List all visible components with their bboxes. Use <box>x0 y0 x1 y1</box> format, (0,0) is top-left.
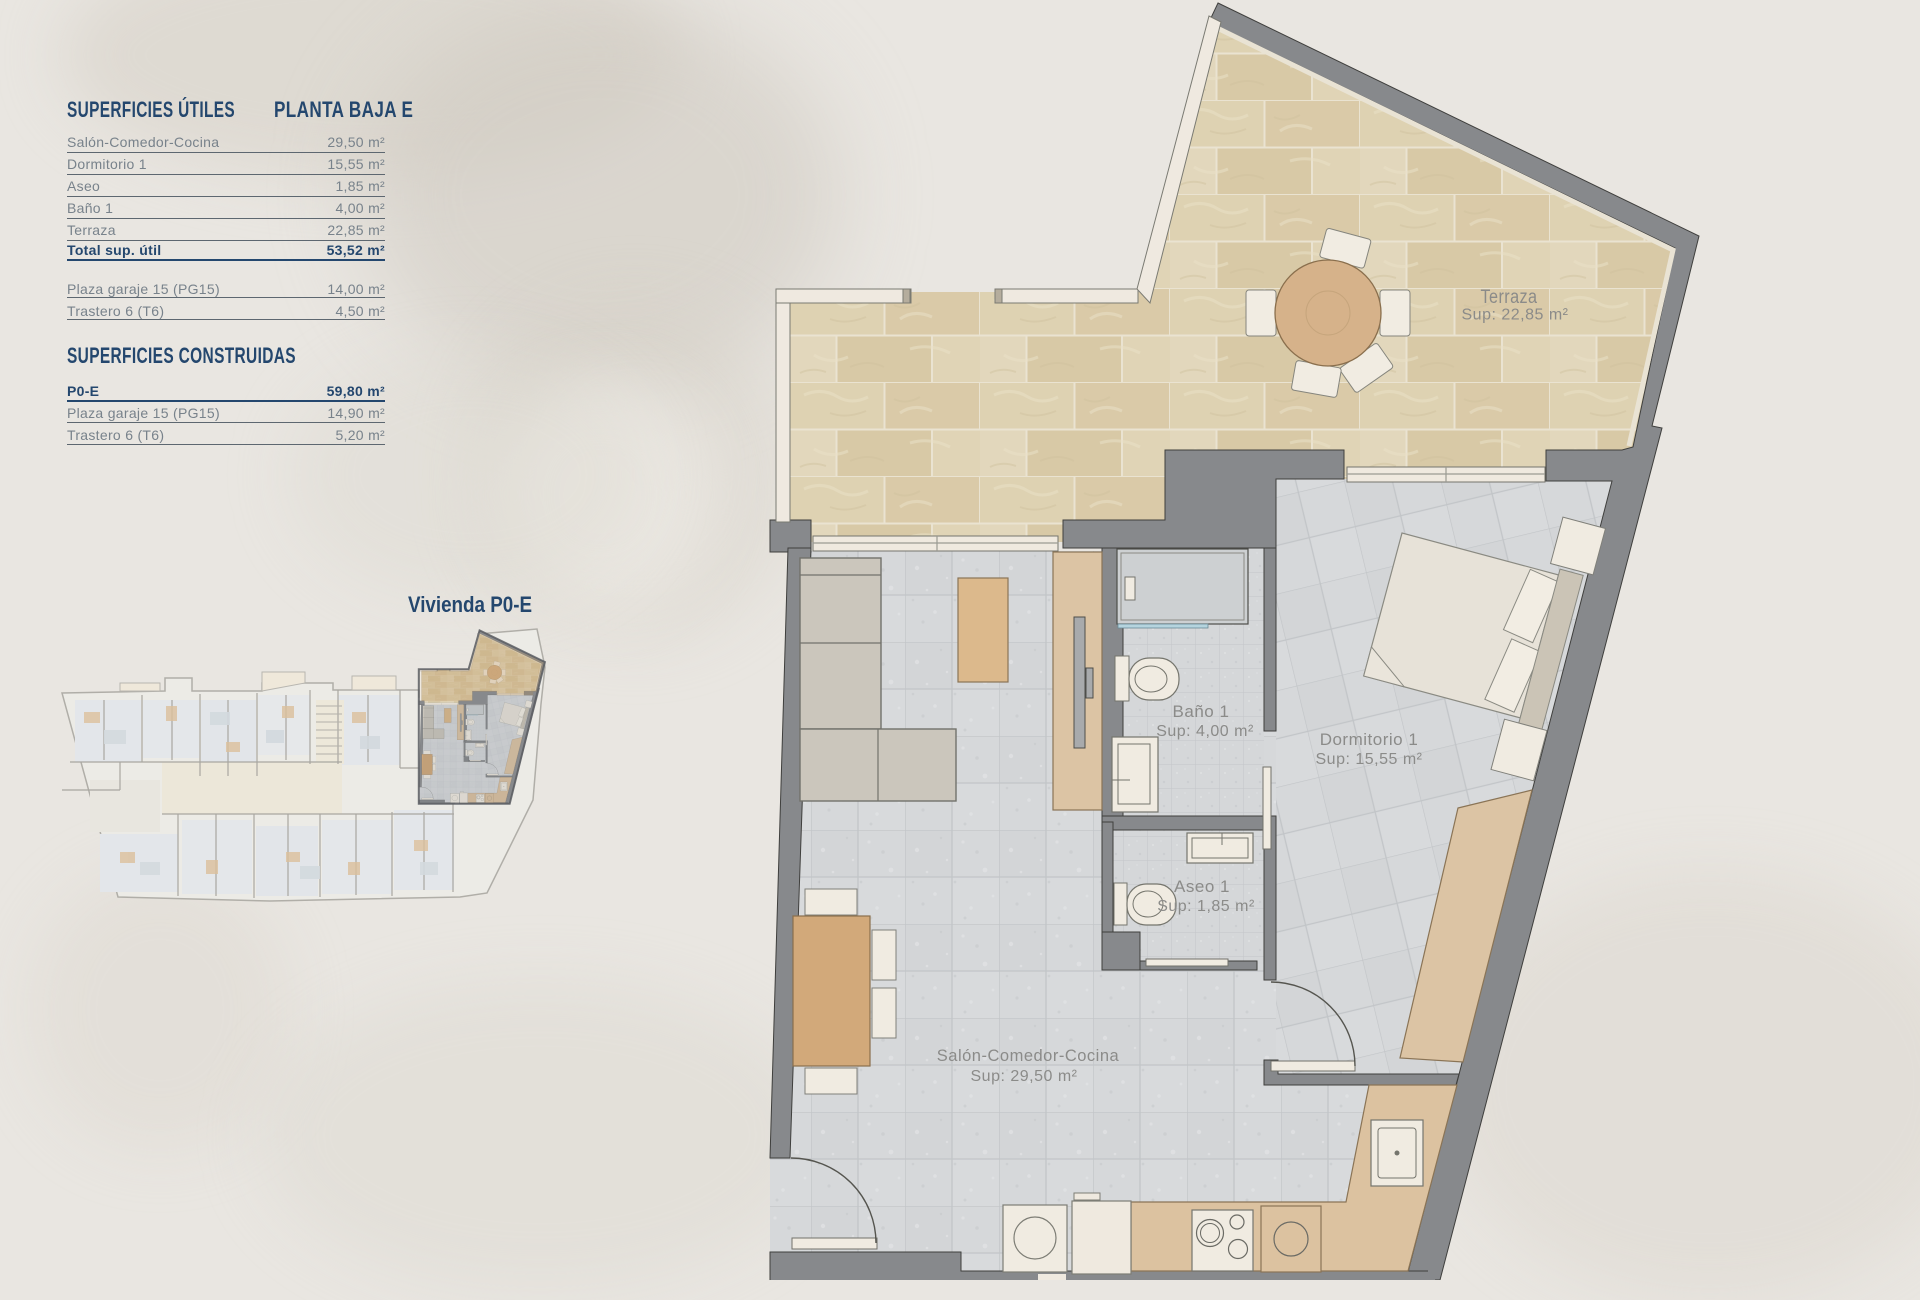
svg-text:Sup: 22,85 m²: Sup: 22,85 m² <box>1462 307 1569 324</box>
svg-text:Vivienda P0-E: Vivienda P0-E <box>408 592 532 617</box>
svg-text:Sup: 4,00 m²: Sup: 4,00 m² <box>1156 723 1254 740</box>
svg-text:Terraza: Terraza <box>1481 287 1538 308</box>
svg-text:Aseo 1: Aseo 1 <box>1174 877 1230 896</box>
svg-text:Sup: 29,50 m²: Sup: 29,50 m² <box>971 1068 1078 1085</box>
svg-text:Salón-Comedor-Cocina: Salón-Comedor-Cocina <box>937 1047 1120 1065</box>
svg-text:Sup: 1,85 m²: Sup: 1,85 m² <box>1157 898 1255 915</box>
svg-text:Baño 1: Baño 1 <box>1173 702 1230 721</box>
svg-text:Dormitorio 1: Dormitorio 1 <box>1320 730 1419 749</box>
svg-text:Sup: 15,55 m²: Sup: 15,55 m² <box>1316 751 1423 768</box>
